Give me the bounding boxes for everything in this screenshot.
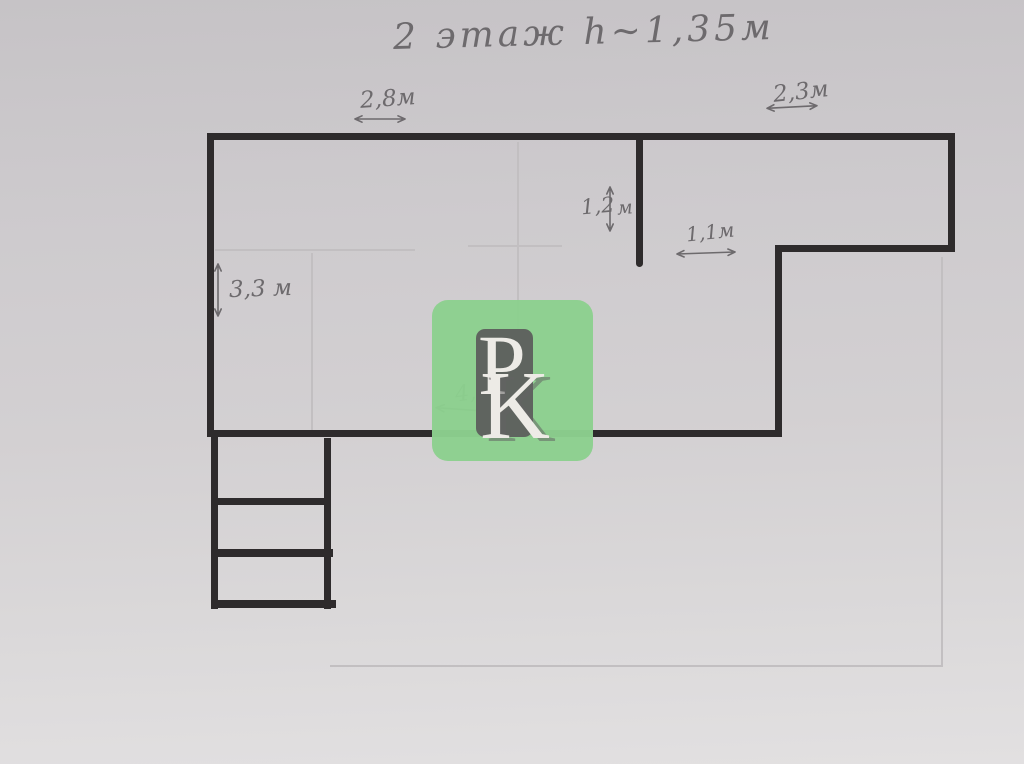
stairs-tread-1: [211, 498, 331, 505]
double-arrow-vertical-icon: [604, 184, 616, 234]
stairs-tread-3: [217, 600, 336, 608]
stairs-tread-2: [214, 549, 333, 557]
wall-right: [948, 133, 955, 252]
wall-top: [207, 133, 955, 140]
faint-line-vertical-left: [311, 253, 313, 431]
faint-line-horizontal-bottom: [330, 665, 942, 667]
dimension-label-2-8: 2,8м: [359, 84, 416, 114]
dimension-label-3-3: 3,3 м: [229, 275, 293, 303]
stairs-left-rail: [211, 437, 218, 609]
dimension-label-1-1: 1,1м: [685, 218, 736, 247]
floor-plan-photo: 2 этаж h~1,35м 2,8м 2,3м 3,3 м 1,2 м 1,1…: [0, 0, 1024, 764]
double-arrow-horizontal-icon: [674, 246, 738, 260]
wall-right-section-bottom: [775, 245, 955, 252]
page-title: 2 этаж h~1,35м: [393, 7, 776, 58]
faint-line-vertical-right: [941, 257, 943, 667]
stairs-right-rail: [324, 438, 331, 609]
double-arrow-vertical-icon: [212, 261, 224, 319]
dimension-unit-1-2: м: [616, 196, 634, 219]
faint-line-horizontal-mid: [468, 245, 562, 247]
double-arrow-horizontal-icon: [352, 113, 408, 125]
watermark-logo: P K: [432, 300, 593, 461]
wall-middle-vertical: [775, 245, 782, 437]
watermark-letter-k: K: [480, 357, 550, 454]
wall-interior-partition: [636, 137, 643, 267]
faint-line-horizontal-left: [215, 249, 415, 251]
double-arrow-horizontal-icon: [764, 100, 821, 115]
